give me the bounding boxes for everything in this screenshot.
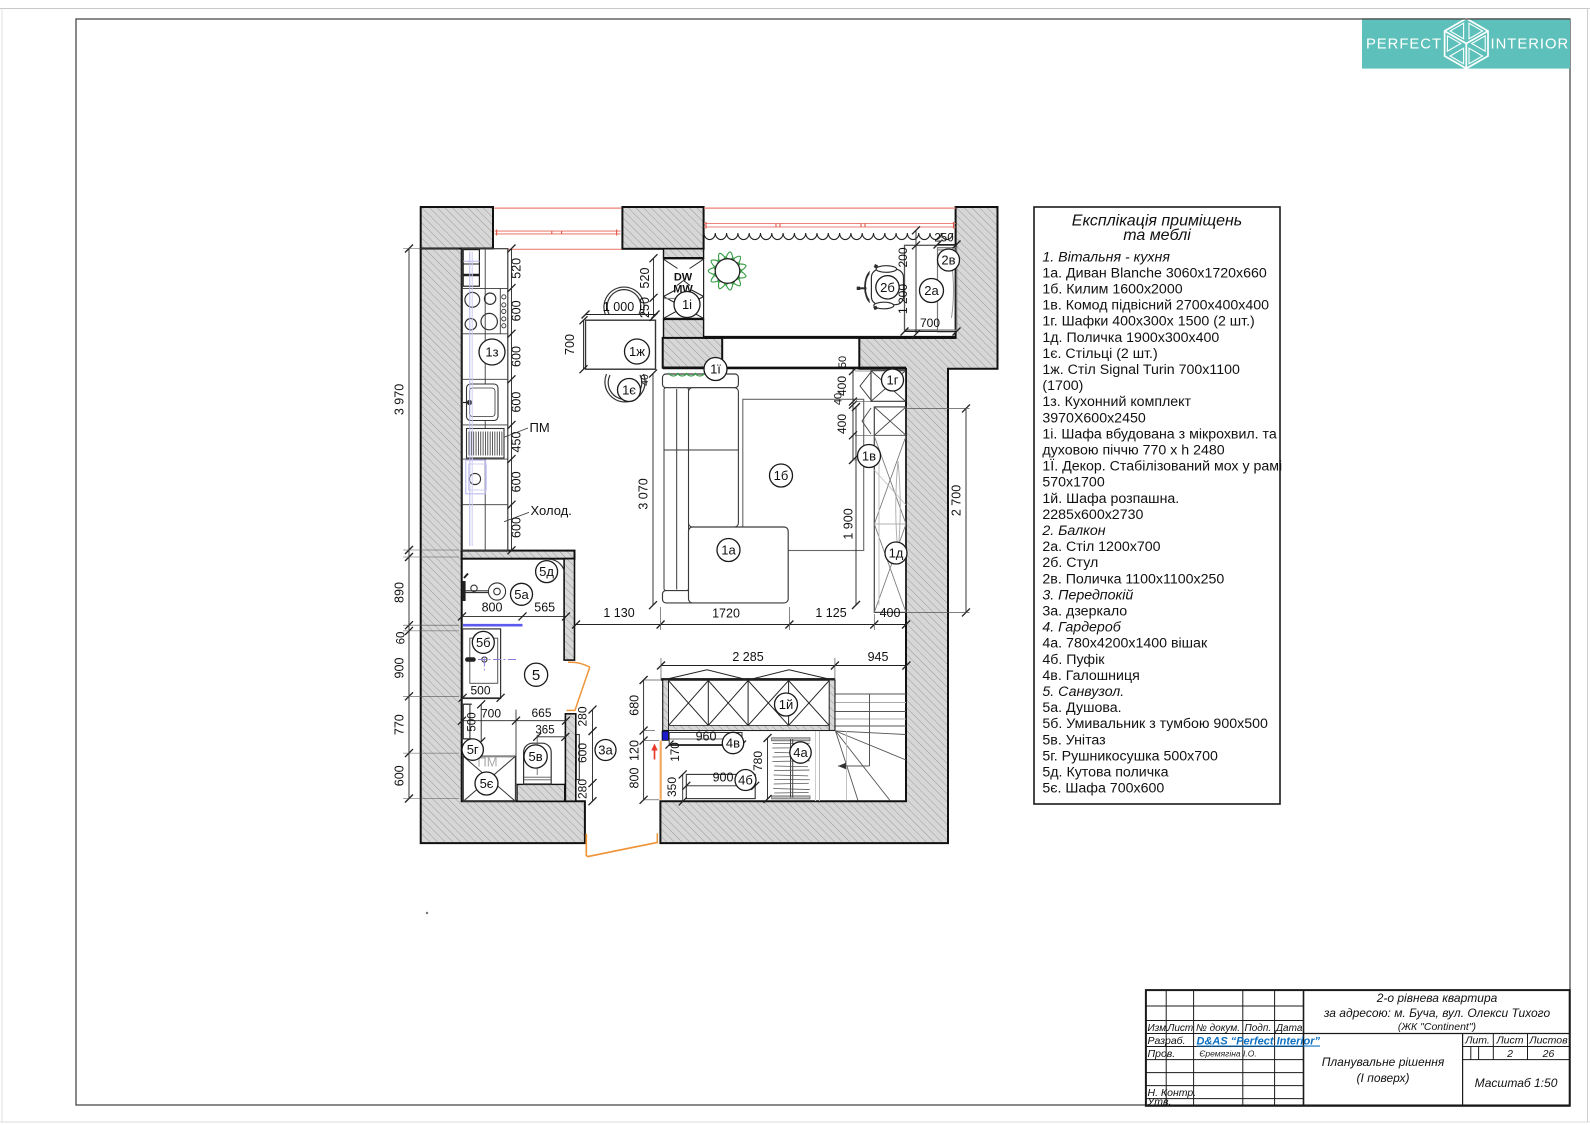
svg-text:1б. Килим 1600х2000: 1б. Килим 1600х2000 bbox=[1042, 282, 1182, 298]
svg-text:4а: 4а bbox=[793, 745, 808, 760]
svg-text:520: 520 bbox=[638, 268, 652, 289]
svg-text:Подп.: Подп. bbox=[1245, 1023, 1272, 1034]
svg-text:5в: 5в bbox=[529, 749, 543, 764]
svg-text:2в: 2в bbox=[941, 253, 955, 268]
svg-text:1є. Стільці (2 шт.): 1є. Стільці (2 шт.) bbox=[1042, 346, 1157, 362]
svg-text:1б: 1б bbox=[774, 468, 789, 483]
svg-text:2а: 2а bbox=[924, 283, 939, 298]
svg-text:3а. дзеркало: 3а. дзеркало bbox=[1042, 604, 1127, 620]
svg-text:1г. Шафки 400х300х 1500 (2 шт: 1г. Шафки 400х300х 1500 (2 шт.) bbox=[1042, 314, 1254, 330]
svg-text:700: 700 bbox=[563, 334, 577, 355]
svg-text:1і: 1і bbox=[682, 297, 692, 312]
svg-text:Планувальне рішення: Планувальне рішення bbox=[1322, 1055, 1445, 1069]
svg-text:5д. Кутова поличка: 5д. Кутова поличка bbox=[1042, 765, 1168, 781]
svg-text:1в. Комод підвісний 2700х400х4: 1в. Комод підвісний 2700х400х400 bbox=[1042, 298, 1269, 314]
svg-text:2в. Поличка 1100х1100х250: 2в. Поличка 1100х1100х250 bbox=[1042, 571, 1224, 587]
svg-text:890: 890 bbox=[393, 582, 407, 603]
svg-text:800: 800 bbox=[628, 768, 642, 789]
svg-text:1720: 1720 bbox=[712, 607, 740, 621]
svg-text:2 285: 2 285 bbox=[732, 650, 763, 664]
svg-text:60: 60 bbox=[396, 632, 408, 645]
svg-text:2б: 2б bbox=[880, 280, 895, 295]
svg-text:960: 960 bbox=[696, 730, 717, 744]
svg-text:Лист: Лист bbox=[1495, 1035, 1523, 1047]
svg-text:600: 600 bbox=[510, 392, 524, 413]
svg-text:1ж. Стіл Signal Turin 700х110: 1ж. Стіл Signal Turin 700х1100 bbox=[1042, 362, 1240, 378]
svg-text:600: 600 bbox=[510, 471, 524, 492]
svg-text:2а. Стіл 1200х700: 2а. Стіл 1200х700 bbox=[1042, 539, 1160, 555]
svg-text:4. Гардероб: 4. Гардероб bbox=[1042, 620, 1121, 636]
svg-text:Холод.: Холод. bbox=[531, 503, 572, 518]
svg-text:520: 520 bbox=[510, 258, 524, 279]
svg-text:1ї: 1ї bbox=[710, 362, 721, 377]
svg-text:Масштаб 1:50: Масштаб 1:50 bbox=[1475, 1076, 1558, 1090]
svg-text:600: 600 bbox=[510, 346, 524, 367]
svg-text:Утв.: Утв. bbox=[1147, 1096, 1172, 1108]
svg-text:1 130: 1 130 bbox=[603, 606, 634, 620]
svg-text:780: 780 bbox=[751, 751, 765, 771]
svg-text:3а: 3а bbox=[598, 743, 613, 758]
svg-text:5. Санвузол.: 5. Санвузол. bbox=[1042, 684, 1124, 700]
svg-text:1з: 1з bbox=[485, 345, 498, 360]
svg-text:5г. Рушникосушка 500х700: 5г. Рушникосушка 500х700 bbox=[1042, 748, 1218, 764]
svg-text:4в. Галошниця: 4в. Галошниця bbox=[1042, 668, 1139, 684]
svg-text:120: 120 bbox=[628, 740, 642, 761]
svg-text:500: 500 bbox=[467, 712, 479, 731]
svg-text:5г: 5г bbox=[467, 742, 479, 757]
svg-text:DW: DW bbox=[674, 272, 693, 284]
svg-text:Дата: Дата bbox=[1275, 1023, 1303, 1034]
svg-text:(І поверх): (І поверх) bbox=[1357, 1071, 1410, 1085]
svg-text:365: 365 bbox=[535, 724, 554, 736]
svg-text:1г: 1г bbox=[887, 373, 899, 388]
svg-text:1й. Шафа розпашна.: 1й. Шафа розпашна. bbox=[1042, 491, 1179, 507]
svg-text:770: 770 bbox=[393, 714, 407, 735]
svg-text:2. Балкон: 2. Балкон bbox=[1041, 523, 1105, 539]
svg-text:№ докум.: № докум. bbox=[1196, 1023, 1240, 1034]
svg-text:280: 280 bbox=[576, 706, 590, 726]
svg-text:за адресою: м. Буча, вул. Олек: за адресою: м. Буча, вул. Олекси Тихого bbox=[1323, 1006, 1551, 1020]
svg-text:4б. Пуфік: 4б. Пуфік bbox=[1042, 652, 1105, 668]
svg-text:1 000: 1 000 bbox=[603, 300, 634, 314]
svg-text:Разраб.: Разраб. bbox=[1148, 1035, 1186, 1047]
svg-text:600: 600 bbox=[510, 300, 524, 321]
svg-text:5а. Душова.: 5а. Душова. bbox=[1042, 700, 1121, 716]
svg-text:1й: 1й bbox=[779, 697, 794, 712]
svg-text:3 070: 3 070 bbox=[637, 478, 651, 509]
svg-text:(1700): (1700) bbox=[1042, 378, 1083, 394]
svg-text:800: 800 bbox=[482, 601, 503, 615]
svg-text:2б. Стул: 2б. Стул bbox=[1042, 555, 1098, 571]
svg-text:3 970: 3 970 bbox=[393, 384, 407, 415]
svg-text:5є. Шафа 700х600: 5є. Шафа 700х600 bbox=[1042, 781, 1164, 797]
svg-text:2285х600х2730: 2285х600х2730 bbox=[1042, 507, 1143, 523]
svg-text:1а: 1а bbox=[721, 543, 736, 558]
svg-text:1з. Кухонний комплект: 1з. Кухонний комплект bbox=[1042, 394, 1191, 410]
svg-text:250: 250 bbox=[934, 233, 953, 245]
svg-text:3970Х600х2450: 3970Х600х2450 bbox=[1042, 410, 1145, 426]
svg-text:1 125: 1 125 bbox=[815, 606, 846, 620]
svg-text:PERFECT: PERFECT bbox=[1366, 37, 1442, 53]
svg-text:700: 700 bbox=[920, 316, 940, 330]
svg-text:1і. Шафа вбудована з мікрохви: 1і. Шафа вбудована з мікрохвил. та bbox=[1042, 426, 1276, 442]
svg-text:170: 170 bbox=[670, 742, 682, 761]
svg-text:4в: 4в bbox=[726, 736, 740, 751]
svg-text:1в: 1в bbox=[862, 449, 876, 464]
svg-text:500: 500 bbox=[470, 684, 490, 698]
svg-text:50: 50 bbox=[837, 356, 849, 368]
svg-text:1 900: 1 900 bbox=[842, 508, 856, 539]
svg-text:3. Передпокій: 3. Передпокій bbox=[1042, 587, 1133, 603]
svg-text:Пров.: Пров. bbox=[1148, 1048, 1176, 1060]
svg-text:400: 400 bbox=[880, 606, 901, 620]
svg-text:5д: 5д bbox=[539, 564, 554, 579]
svg-text:1Ї. Декор. Стабілізований мох: 1Ї. Декор. Стабілізований мох у рамі bbox=[1042, 458, 1282, 475]
svg-text:1ж: 1ж bbox=[629, 344, 645, 359]
svg-text:Изм.: Изм. bbox=[1148, 1023, 1169, 1034]
svg-text:5а: 5а bbox=[514, 587, 529, 602]
svg-text:ПМ: ПМ bbox=[530, 420, 550, 435]
svg-text:4а. 780х4200х1400 вішак: 4а. 780х4200х1400 вішак bbox=[1042, 636, 1208, 652]
svg-text:680: 680 bbox=[628, 695, 642, 716]
svg-text:5б: 5б bbox=[476, 635, 491, 650]
svg-text:570х1700: 570х1700 bbox=[1042, 475, 1104, 491]
svg-text:665: 665 bbox=[531, 706, 551, 720]
svg-text:565: 565 bbox=[534, 601, 555, 615]
svg-text:Лист: Лист bbox=[1167, 1023, 1194, 1034]
svg-text:2 700: 2 700 bbox=[950, 485, 964, 516]
svg-text:900: 900 bbox=[393, 658, 407, 679]
svg-text:900: 900 bbox=[713, 771, 734, 785]
svg-text:280: 280 bbox=[576, 779, 590, 799]
svg-text:1. Вітальня - кухня: 1. Вітальня - кухня bbox=[1042, 249, 1170, 265]
svg-text:(ЖК "Continent"): (ЖК "Continent") bbox=[1398, 1021, 1476, 1033]
svg-text:945: 945 bbox=[868, 650, 889, 664]
svg-text:26: 26 bbox=[1542, 1048, 1555, 1060]
svg-text:1а. Диван Blanche 3060х1720х66: 1а. Диван Blanche 3060х1720х660 bbox=[1042, 265, 1267, 281]
svg-text:5є: 5є bbox=[480, 776, 494, 791]
svg-text:4б: 4б bbox=[738, 773, 753, 788]
svg-text:2: 2 bbox=[1506, 1048, 1513, 1060]
svg-text:та меблі: та меблі bbox=[1123, 227, 1191, 244]
svg-text:200: 200 bbox=[896, 247, 910, 267]
svg-text:духовою піччю 770 х h 2480: духовою піччю 770 х h 2480 bbox=[1042, 443, 1224, 459]
svg-text:1є: 1є bbox=[622, 383, 636, 398]
svg-text:INTERIOR: INTERIOR bbox=[1491, 37, 1570, 53]
svg-text:5б. Умивальник з тумбою 900х: 5б. Умивальник з тумбою 900х500 bbox=[1042, 716, 1268, 732]
svg-text:5: 5 bbox=[532, 667, 540, 684]
svg-text:1д. Поличка 1900х300х400: 1д. Поличка 1900х300х400 bbox=[1042, 330, 1219, 346]
svg-text:1д: 1д bbox=[889, 546, 904, 561]
svg-text:Єремягіна І.О.: Єремягіна І.О. bbox=[1199, 1049, 1256, 1059]
svg-text:600: 600 bbox=[510, 517, 524, 538]
svg-text:Листов: Листов bbox=[1528, 1035, 1568, 1047]
svg-text:350: 350 bbox=[665, 777, 679, 797]
svg-text:2-о рівнева квартира: 2-о рівнева квартира bbox=[1376, 991, 1498, 1005]
svg-text:700: 700 bbox=[481, 707, 501, 721]
svg-text:40: 40 bbox=[833, 393, 845, 405]
svg-text:D&AS “Perfect Interior”: D&AS “Perfect Interior” bbox=[1197, 1036, 1321, 1048]
svg-text:600: 600 bbox=[393, 765, 407, 786]
svg-text:Лит.: Лит. bbox=[1464, 1035, 1490, 1047]
svg-text:5в. Унітаз: 5в. Унітаз bbox=[1042, 732, 1105, 748]
svg-text:40: 40 bbox=[639, 374, 651, 386]
svg-text:600: 600 bbox=[576, 743, 590, 763]
svg-text:400: 400 bbox=[835, 414, 849, 434]
